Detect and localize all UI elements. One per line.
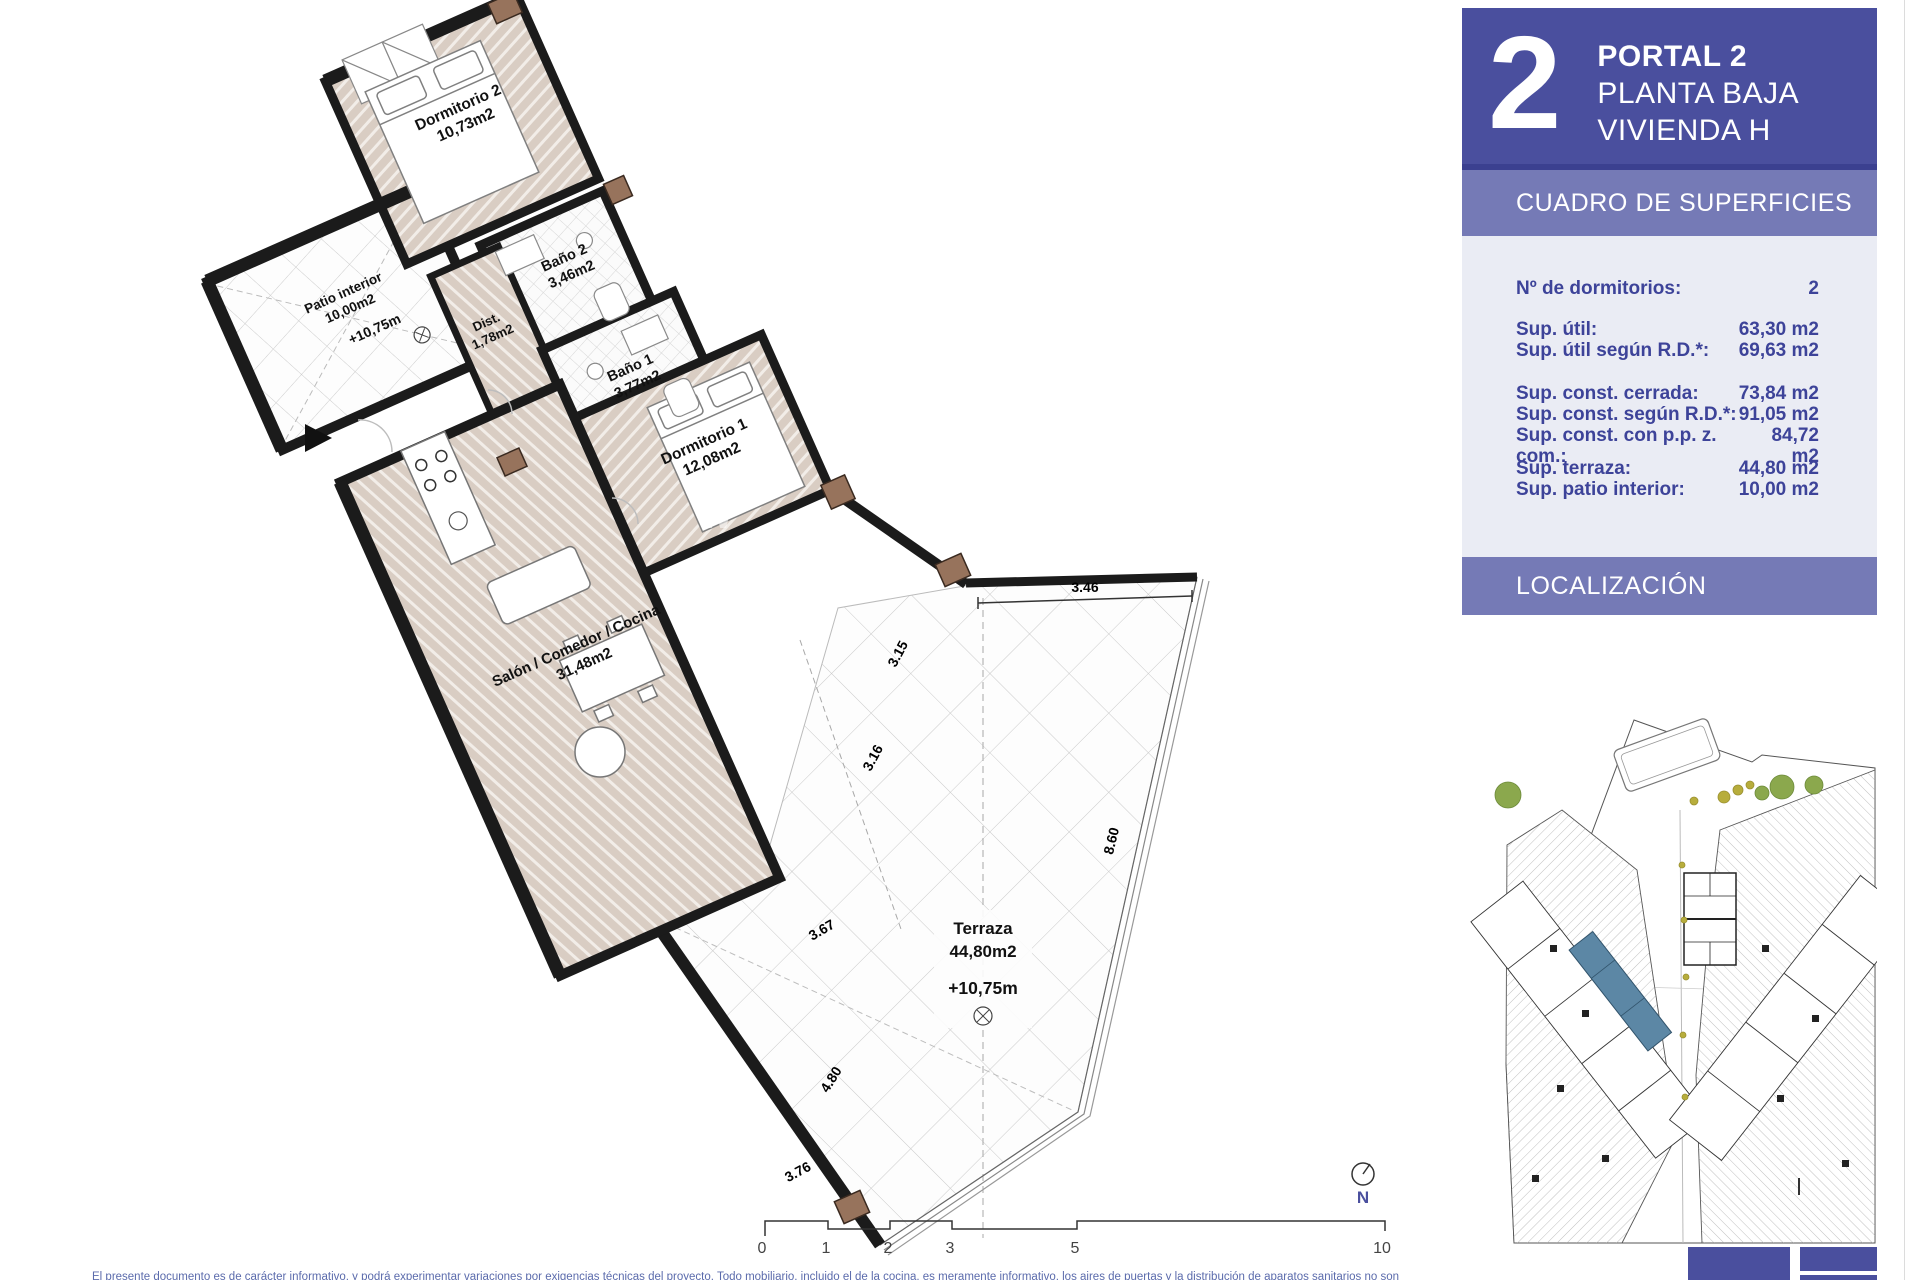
scale-tick-5: 5 xyxy=(1071,1240,1080,1257)
terraza-level-marker-icon xyxy=(974,1007,992,1025)
room-level-terraza: +10,75m xyxy=(948,978,1018,998)
table-row: Nº de dormitorios: 2 xyxy=(1516,278,1819,299)
table-row: Sup. útil según R.D.*: 69,63 m2 xyxy=(1516,340,1819,361)
north-label: N xyxy=(1357,1188,1369,1207)
scale-tick-3: 3 xyxy=(946,1240,955,1257)
watermark: W xyxy=(700,498,733,536)
north-indicator-icon: N xyxy=(1352,1163,1374,1207)
row-label: Sup. const. según R.D.*: xyxy=(1516,404,1737,425)
scale-tick-10: 10 xyxy=(1373,1240,1391,1257)
scale-tick-0: 0 xyxy=(758,1240,767,1257)
unit-header: 2 PORTAL 2 PLANTA BAJA VIVIENDA H xyxy=(1462,8,1877,170)
logo-tick xyxy=(1798,1178,1800,1195)
row-value: 69,63 m2 xyxy=(1739,340,1819,361)
table-row: Sup. útil: 63,30 m2 xyxy=(1516,319,1819,340)
row-label: Sup. terraza: xyxy=(1516,458,1631,479)
page-right-rule xyxy=(1904,0,1905,1280)
plan-sheet-page: Dormitorio 2 10,73m2 Baño 2 3,46m2 Dist.… xyxy=(0,0,1920,1280)
row-value: 73,84 m2 xyxy=(1739,383,1819,404)
dwelling-label: VIVIENDA H xyxy=(1597,112,1799,149)
table-row: Sup. const. con p.p. z. com.: 84,72 m2 xyxy=(1516,425,1819,446)
site-location-plan xyxy=(1462,615,1877,1245)
location-title-bar: LOCALIZACIÓN xyxy=(1462,557,1877,615)
room-area-terraza: 44,80m2 xyxy=(949,942,1016,961)
table-row: Sup. const. cerrada: 73,84 m2 xyxy=(1516,383,1819,404)
footer-logo-block xyxy=(1800,1247,1877,1271)
row-value: 2 xyxy=(1808,278,1819,299)
surfaces-title-bar: CUADRO DE SUPERFICIES xyxy=(1462,170,1877,236)
disclaimer-text: El presente documento es de carácter inf… xyxy=(92,1271,1462,1280)
row-value: 84,72 m2 xyxy=(1747,425,1819,446)
row-value: 44,80 m2 xyxy=(1739,458,1819,479)
footer-logo-block xyxy=(1800,1275,1877,1280)
row-value: 10,00 m2 xyxy=(1739,479,1819,500)
table-row: Sup. patio interior: 10,00 m2 xyxy=(1516,479,1819,500)
row-value: 91,05 m2 xyxy=(1739,404,1819,425)
dim-3-46: 3.46 xyxy=(1071,579,1098,595)
unit-number: 2 xyxy=(1488,8,1561,164)
row-label: Nº de dormitorios: xyxy=(1516,278,1681,299)
dim-3-76: 3.76 xyxy=(782,1158,814,1185)
table-row: Sup. terraza: 44,80 m2 xyxy=(1516,458,1819,479)
row-label: Sup. patio interior: xyxy=(1516,479,1685,500)
scale-tick-2: 2 xyxy=(884,1240,893,1257)
table-row: Sup. const. según R.D.*: 91,05 m2 xyxy=(1516,404,1819,425)
surfaces-title: CUADRO DE SUPERFICIES xyxy=(1516,189,1852,218)
room-label-terraza: Terraza xyxy=(953,919,1013,938)
scale-bar: 0 1 2 3 5 10 xyxy=(758,1221,1391,1257)
location-title: LOCALIZACIÓN xyxy=(1516,572,1707,601)
portal-label: PORTAL 2 xyxy=(1597,38,1799,75)
surfaces-table: Nº de dormitorios: 2 Sup. útil: 63,30 m2… xyxy=(1462,236,1877,557)
floor-label: PLANTA BAJA xyxy=(1597,75,1799,112)
scale-tick-1: 1 xyxy=(822,1240,831,1257)
row-label: Sup. útil según R.D.*: xyxy=(1516,340,1709,361)
tennis-court xyxy=(1684,873,1736,965)
row-value: 63,30 m2 xyxy=(1739,319,1819,340)
footer-logo-block xyxy=(1688,1247,1790,1280)
row-label: Sup. const. con p.p. z. com.: xyxy=(1516,425,1747,446)
row-label: Sup. útil: xyxy=(1516,319,1597,340)
floor-plan-drawing: Dormitorio 2 10,73m2 Baño 2 3,46m2 Dist.… xyxy=(0,0,1460,1280)
row-label: Sup. const. cerrada: xyxy=(1516,383,1699,404)
